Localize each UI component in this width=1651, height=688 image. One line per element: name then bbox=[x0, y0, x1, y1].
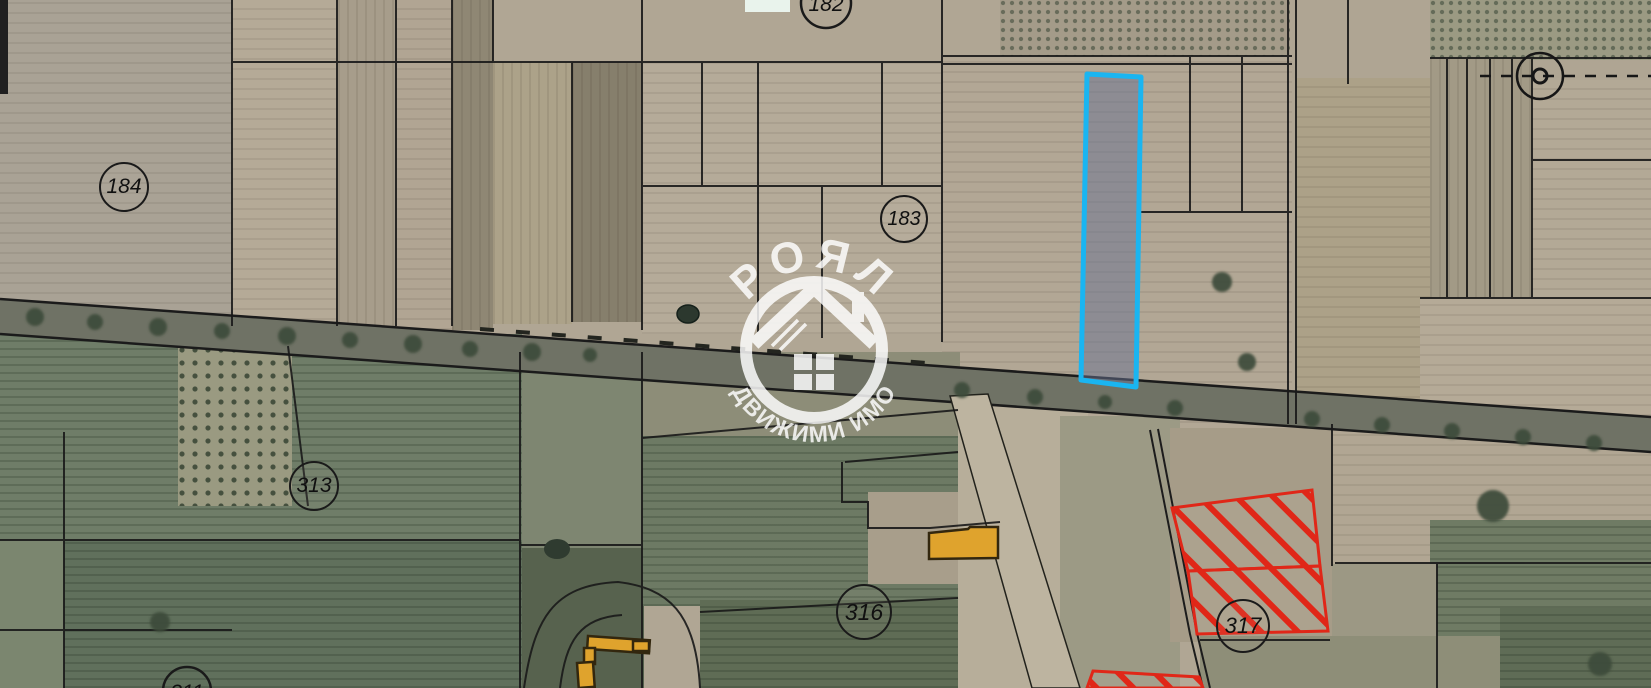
parcel-label-184: 184 bbox=[99, 162, 149, 212]
parcel-label-317: 317 bbox=[1216, 599, 1270, 653]
parcel-label-311: 311 bbox=[163, 667, 211, 688]
parcel-label-182: 182 bbox=[801, 0, 851, 28]
agency-watermark: РОЯЛ НЕДВИЖИМИ ИМОТИ bbox=[648, 192, 980, 492]
svg-text:311: 311 bbox=[170, 681, 203, 688]
hatched-parcels[interactable] bbox=[1087, 490, 1328, 688]
map-canvas[interactable]: 182 311 bbox=[0, 0, 1651, 688]
parcel-label-313: 313 bbox=[289, 461, 339, 511]
selected-parcel-highlight[interactable] bbox=[1081, 74, 1141, 387]
orange-zone bbox=[929, 527, 998, 559]
svg-text:182: 182 bbox=[808, 0, 843, 16]
pond bbox=[544, 539, 570, 559]
parcel-label-316: 316 bbox=[836, 584, 892, 640]
ui-strip-artifact bbox=[745, 0, 790, 12]
